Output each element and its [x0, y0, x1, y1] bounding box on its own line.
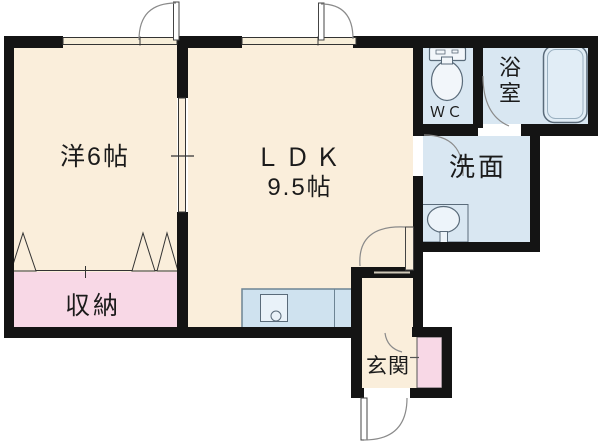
hallway-floor: [362, 277, 413, 337]
washroom-label: 洗面: [449, 152, 507, 182]
wall-washroom-bottom: [413, 242, 540, 252]
bathtub-outer: [544, 46, 588, 123]
wall-bottom-left: [4, 327, 362, 338]
shoe-closet: [417, 337, 442, 388]
wall-wc-bath-divider: [473, 43, 483, 128]
storage-label: 収納: [65, 292, 121, 320]
wall-washroom-right: [530, 124, 540, 252]
bath-label-char2: 室: [499, 81, 521, 106]
washbasin-faucet: [440, 232, 448, 244]
wall-hall-right: [413, 176, 423, 332]
wall-entrance-left: [351, 267, 362, 398]
entrance-door-leaf: [361, 398, 367, 440]
sink-drain-icon: [271, 311, 281, 321]
ldk-label: ＬＤＫ: [255, 144, 345, 172]
ldk-door-leaf: [319, 3, 325, 40]
window-band-ldk: [242, 38, 356, 45]
wall-partition-upper: [177, 36, 188, 98]
sliding-door-panel: [179, 98, 186, 212]
wall-entrance-bottom-left: [351, 388, 364, 398]
toilet-hinge: [442, 57, 453, 64]
west-door-arc: [139, 3, 176, 40]
wall-bath-right: [588, 36, 598, 136]
western-room-label: 洋6帖: [60, 143, 130, 171]
wall-entrance-right: [442, 327, 452, 398]
bath-label-char1: 浴: [499, 55, 521, 80]
ldk-door-arc: [321, 4, 353, 39]
bathtub-icon: [544, 46, 588, 123]
window-band-west: [63, 38, 177, 45]
counter-body: [242, 289, 354, 328]
wall-wc-left: [413, 43, 423, 135]
kitchen-counter: [242, 289, 354, 328]
washbasin-icon: [421, 205, 468, 244]
wc-label: ＷＣ: [430, 104, 464, 121]
hall-door-leaf: [406, 227, 414, 270]
washbasin-bowl: [428, 207, 460, 233]
floor-plan: 洋6帖 ＬＤＫ 9.5帖 ＷＣ 浴 室 洗面 収納 玄関: [0, 0, 600, 441]
toilet-icon: [430, 48, 466, 101]
wall-wc-bottom: [413, 124, 478, 136]
west-door-leaf: [174, 2, 180, 40]
ldk-size-label: 9.5帖: [267, 174, 332, 201]
wall-left-outer: [4, 36, 14, 338]
entrance-label: 玄関: [366, 355, 410, 378]
wall-partition-lower: [177, 212, 188, 338]
entrance-door-arc: [364, 398, 407, 440]
floor-plan-canvas: 洋6帖 ＬＤＫ 9.5帖 ＷＣ 浴 室 洗面 収納 玄関: [0, 0, 600, 441]
wall-entrance-bottom-right: [410, 388, 452, 398]
toilet-bowl: [432, 62, 463, 101]
